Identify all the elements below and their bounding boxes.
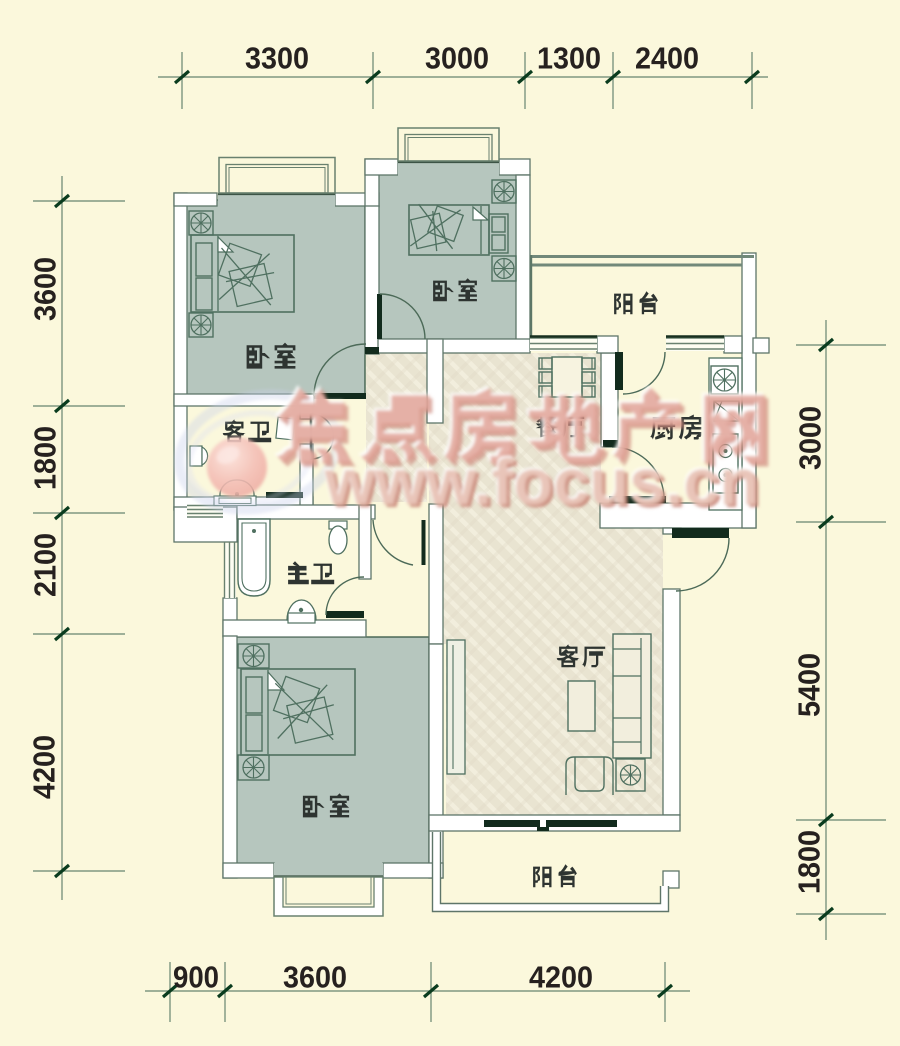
- svg-text:2400: 2400: [635, 41, 699, 76]
- svg-text:1300: 1300: [537, 41, 601, 76]
- svg-text:www.focus.cn: www.focus.cn: [324, 446, 760, 519]
- svg-text:2100: 2100: [28, 533, 63, 597]
- svg-text:3300: 3300: [245, 41, 309, 76]
- svg-text:5400: 5400: [792, 653, 827, 717]
- svg-text:3600: 3600: [28, 257, 63, 321]
- svg-text:1800: 1800: [28, 426, 63, 490]
- svg-text:900: 900: [173, 960, 219, 995]
- svg-text:4200: 4200: [529, 960, 593, 995]
- svg-text:3000: 3000: [793, 406, 828, 470]
- svg-text:4200: 4200: [27, 735, 62, 799]
- svg-text:3000: 3000: [425, 41, 489, 76]
- svg-text:3600: 3600: [283, 960, 347, 995]
- svg-text:1800: 1800: [792, 830, 827, 894]
